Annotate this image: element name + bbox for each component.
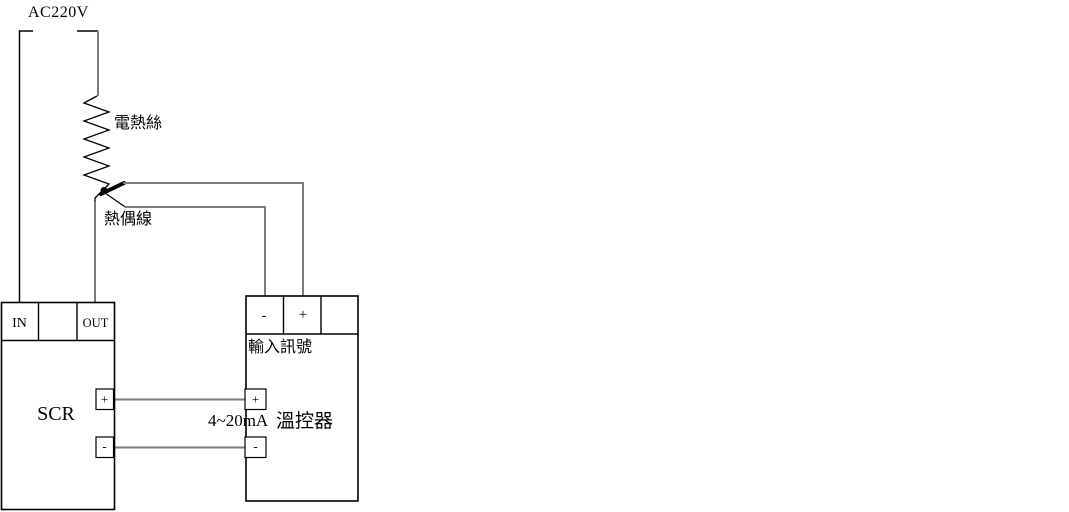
ac-power-label: AC220V	[28, 4, 89, 21]
controller-input-signal-label: 輸入訊號	[248, 338, 312, 356]
controller-signal-range-label: 4~20mA	[208, 411, 269, 430]
heater-label: 電熱絲	[114, 114, 162, 132]
scr-in-terminal-label: IN	[12, 316, 27, 331]
scr-output-minus-label: -	[102, 439, 106, 454]
thermocouple-label: 熱偶線	[104, 210, 152, 228]
scr-out-terminal-label: OUT	[83, 316, 109, 330]
wiring-diagram-canvas: IN OUT SCR + - - + 輸入訊號 + - AC220V 電熱絲 熱…	[0, 0, 1069, 512]
thermocouple-junction-dot	[101, 187, 108, 194]
controller-input-minus-label: -	[262, 308, 267, 324]
controller-signal-plus-label: +	[252, 392, 259, 407]
controller-name-label: 溫控器	[276, 410, 333, 432]
thermocouple-minus-lead	[105, 193, 126, 208]
scr-output-plus-label: +	[101, 392, 108, 407]
controller-input-plus-label: +	[299, 307, 307, 323]
scr-name-label: SCR	[37, 403, 75, 425]
controller-signal-minus-label: -	[253, 439, 257, 454]
ac-left-lead-wire	[20, 31, 34, 302]
heater-resistor-symbol	[84, 96, 109, 202]
thermocouple-plus-wire	[123, 183, 303, 296]
